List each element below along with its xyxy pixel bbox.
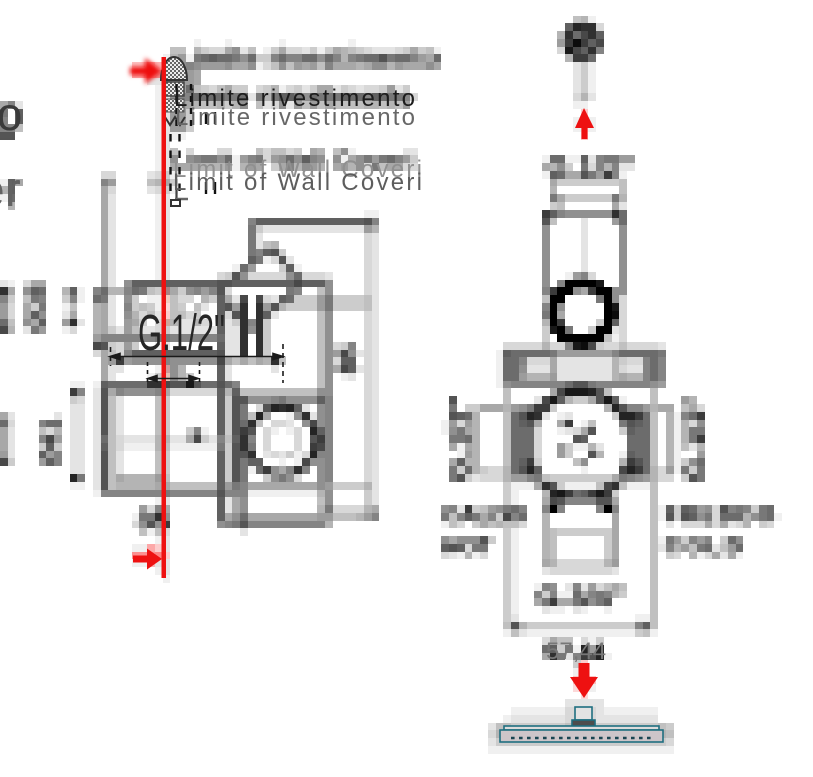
svg-text:Limite rivestimento: Limite rivestimento <box>175 104 415 131</box>
svg-text:G.1/2": G.1/2" <box>138 304 225 361</box>
svg-text:Limit of Wall Coveri: Limit of Wall Coveri <box>173 169 422 196</box>
svg-text:to: to <box>0 88 22 140</box>
svg-text:er: er <box>0 164 21 217</box>
svg-text:57,44: 57,44 <box>546 638 606 665</box>
